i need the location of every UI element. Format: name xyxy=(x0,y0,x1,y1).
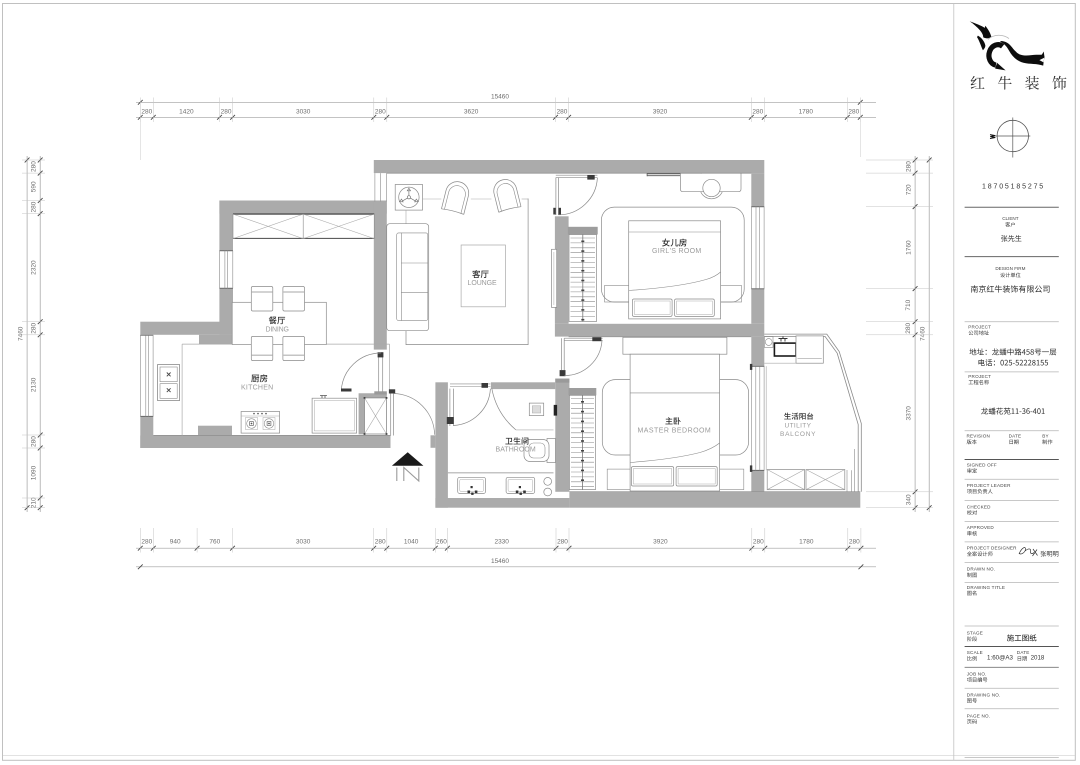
svg-text:DRAWN NO.: DRAWN NO. xyxy=(967,567,995,572)
svg-text:MASTER BEDROOM: MASTER BEDROOM xyxy=(638,427,712,434)
svg-text:PROJECT: PROJECT xyxy=(968,374,991,379)
svg-text:280: 280 xyxy=(221,109,232,116)
svg-text:280: 280 xyxy=(375,539,386,546)
svg-text:APPROVED: APPROVED xyxy=(967,525,995,530)
svg-text:DINING: DINING xyxy=(266,327,290,334)
svg-text:DRAWING NO.: DRAWING NO. xyxy=(967,692,1001,697)
svg-text:2330: 2330 xyxy=(494,539,509,546)
svg-text:7460: 7460 xyxy=(18,326,25,341)
svg-text:280: 280 xyxy=(849,539,860,546)
svg-text:DATE: DATE xyxy=(1017,650,1030,655)
svg-text:CLIENT: CLIENT xyxy=(1002,216,1019,221)
svg-text:280: 280 xyxy=(141,539,152,546)
svg-text:280: 280 xyxy=(31,436,38,447)
svg-text:3920: 3920 xyxy=(653,539,668,546)
svg-text:BATHROOM: BATHROOM xyxy=(496,447,537,454)
svg-text:280: 280 xyxy=(31,201,38,212)
svg-text:15460: 15460 xyxy=(491,558,509,565)
svg-text:280: 280 xyxy=(848,109,859,116)
svg-text:710: 710 xyxy=(905,299,912,310)
svg-text:760: 760 xyxy=(209,539,220,546)
svg-text:260: 260 xyxy=(436,539,447,546)
svg-text:7460: 7460 xyxy=(920,326,927,341)
svg-text:280: 280 xyxy=(375,109,386,116)
svg-text:GIRL'S ROOM: GIRL'S ROOM xyxy=(652,248,702,255)
svg-text:280: 280 xyxy=(905,161,912,172)
svg-text:SIGNED OFF: SIGNED OFF xyxy=(967,463,997,468)
svg-text:BY: BY xyxy=(1042,434,1049,439)
svg-text:280: 280 xyxy=(752,109,763,116)
svg-text:3920: 3920 xyxy=(653,109,668,116)
svg-text:15460: 15460 xyxy=(491,94,509,101)
svg-text:SCALE: SCALE xyxy=(967,650,983,655)
svg-text:2320: 2320 xyxy=(30,260,37,275)
svg-text:3370: 3370 xyxy=(905,406,912,421)
svg-text:1040: 1040 xyxy=(404,539,419,546)
svg-text:UTILITY: UTILITY xyxy=(785,422,812,429)
svg-text:REVISION: REVISION xyxy=(967,434,991,439)
svg-text:280: 280 xyxy=(557,109,568,116)
svg-text:PROJECT: PROJECT xyxy=(968,325,991,330)
svg-text:PROJECT LEADER: PROJECT LEADER xyxy=(967,483,1011,488)
svg-text:PAGE NO.: PAGE NO. xyxy=(967,713,990,718)
svg-text:DESIGN FIRM: DESIGN FIRM xyxy=(995,266,1025,271)
svg-text:280: 280 xyxy=(30,322,37,333)
svg-text:2018: 2018 xyxy=(1031,655,1045,662)
svg-text:LOUNGE: LOUNGE xyxy=(468,280,498,287)
svg-text:3030: 3030 xyxy=(296,109,311,116)
svg-text:3030: 3030 xyxy=(296,539,311,546)
svg-text:PROJECT DESIGNER: PROJECT DESIGNER xyxy=(967,546,1017,551)
svg-text:280: 280 xyxy=(905,322,912,333)
svg-text:18705185275: 18705185275 xyxy=(982,183,1044,190)
svg-text:340: 340 xyxy=(905,494,912,505)
svg-text:STAGE: STAGE xyxy=(967,631,983,636)
svg-text:1780: 1780 xyxy=(799,109,814,116)
svg-text:CHECKED: CHECKED xyxy=(967,504,991,509)
svg-text:3620: 3620 xyxy=(464,109,479,116)
svg-text:280: 280 xyxy=(141,109,152,116)
svg-text:280: 280 xyxy=(30,161,37,172)
svg-text:1420: 1420 xyxy=(179,109,194,116)
svg-text:2130: 2130 xyxy=(31,377,38,392)
svg-text:940: 940 xyxy=(170,539,181,546)
svg-text:280: 280 xyxy=(557,539,568,546)
svg-text:280: 280 xyxy=(753,539,764,546)
svg-text:590: 590 xyxy=(31,181,38,192)
svg-text:1780: 1780 xyxy=(799,539,814,546)
svg-text:1090: 1090 xyxy=(31,465,38,480)
svg-text:JOB NO.: JOB NO. xyxy=(967,672,987,677)
svg-text:1:60@A3: 1:60@A3 xyxy=(987,655,1013,662)
svg-text:DRAWING TITLE: DRAWING TITLE xyxy=(967,585,1005,590)
svg-text:BALCONY: BALCONY xyxy=(780,431,816,438)
svg-text:720: 720 xyxy=(905,184,912,195)
svg-text:210: 210 xyxy=(31,497,38,508)
svg-text:DATE: DATE xyxy=(1009,434,1022,439)
svg-text:1760: 1760 xyxy=(905,240,912,255)
svg-text:KITCHEN: KITCHEN xyxy=(241,385,274,392)
